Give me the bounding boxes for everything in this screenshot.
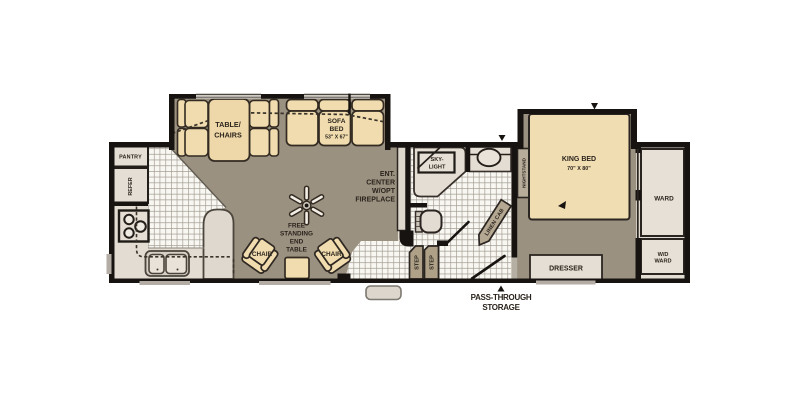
svg-text:STEP: STEP [430,255,436,270]
svg-text:LIGHT: LIGHT [429,165,446,171]
svg-text:WARD: WARD [654,259,671,265]
svg-text:FREE: FREE [288,223,306,230]
svg-text:END: END [290,239,304,246]
svg-text:STANDING: STANDING [280,231,313,238]
svg-text:STEP: STEP [415,255,421,270]
svg-text:NIGHTSTAND: NIGHTSTAND [522,157,527,187]
svg-text:WARD: WARD [654,196,674,203]
svg-text:STORAGE: STORAGE [482,303,520,312]
svg-text:TABLE: TABLE [286,247,308,254]
svg-text:REFER: REFER [128,177,134,195]
svg-text:53" X 67": 53" X 67" [325,135,348,141]
svg-text:PASS-THROUGH: PASS-THROUGH [471,293,532,302]
svg-text:SOFA: SOFA [328,118,346,125]
svg-text:W/OPT: W/OPT [372,188,396,195]
svg-text:CHAIRS: CHAIRS [214,131,242,140]
svg-text:70" X 80": 70" X 80" [567,166,591,172]
svg-text:BED: BED [330,126,344,133]
svg-text:SKY-: SKY- [430,157,443,163]
svg-text:KING BED: KING BED [562,156,596,163]
svg-text:DRESSER: DRESSER [549,266,583,273]
svg-text:ENT.: ENT. [380,171,395,178]
svg-text:PANTRY: PANTRY [119,155,142,161]
svg-text:CHAIR: CHAIR [321,251,342,258]
svg-text:W/D: W/D [658,252,669,258]
svg-text:CENTER: CENTER [366,180,395,187]
svg-text:CHAIR: CHAIR [252,251,273,258]
svg-text:TABLE/: TABLE/ [215,120,240,129]
svg-text:FIREPLACE: FIREPLACE [355,197,395,204]
